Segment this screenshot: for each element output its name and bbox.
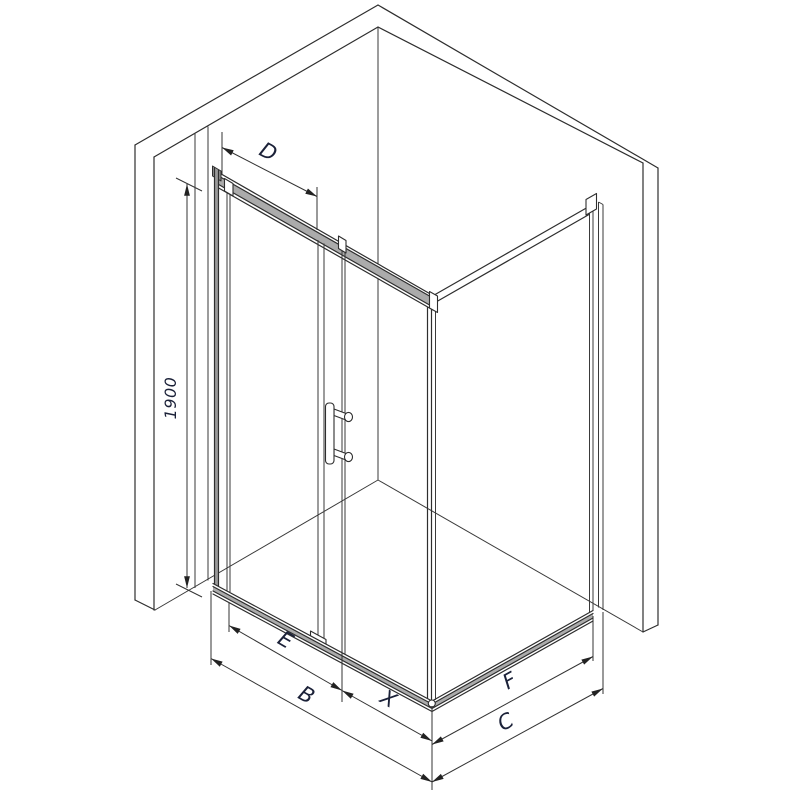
dimension-height-1900: 1900 [161,178,202,597]
technical-drawing-page: D 1900 E X B F C [0,0,800,800]
dimension-label-b: B [294,681,318,709]
door-handle [326,403,353,464]
handle-bar [326,403,335,464]
dimension-label-f: F [499,667,522,694]
corner-post [428,294,436,704]
floor-corner-lines [155,27,643,632]
side-panel-wall-bracket [586,194,597,216]
dimension-label-e: E [274,626,298,654]
door-wall-profile [213,166,222,593]
dimension-label-c: C [493,708,518,736]
sliding-door-top-rail [216,171,438,313]
dimension-label-d: D [256,137,281,166]
corner-walls [135,5,658,632]
fixed-side-panel [432,194,603,712]
dimension-x: X [342,684,432,741]
shower-enclosure-technical-drawing: D 1900 E X B F C [0,0,800,800]
dimension-label-height: 1900 [161,377,180,420]
corner-post-bottom-cap [428,700,435,707]
